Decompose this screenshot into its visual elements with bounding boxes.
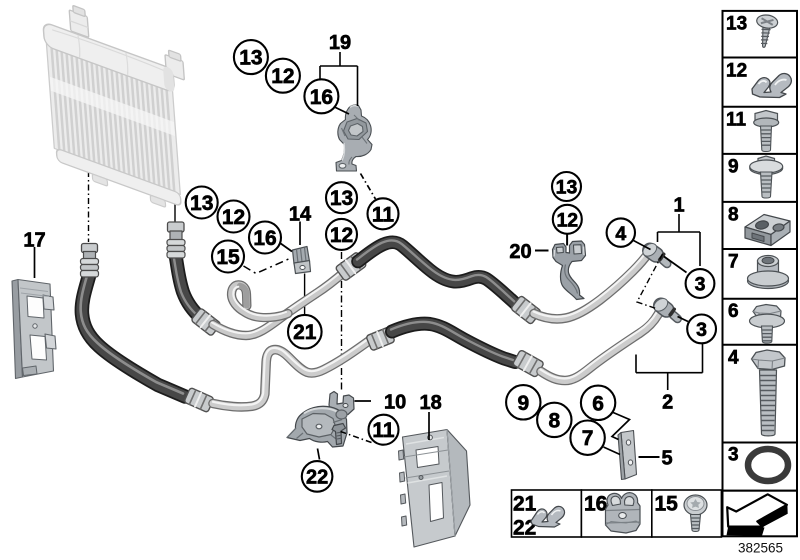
svg-text:4: 4 — [615, 223, 626, 245]
svg-text:12: 12 — [726, 61, 747, 82]
svg-text:21: 21 — [513, 493, 537, 516]
svg-text:8: 8 — [728, 205, 739, 226]
svg-text:6: 6 — [592, 392, 604, 415]
svg-text:20: 20 — [509, 241, 531, 263]
svg-text:9: 9 — [728, 157, 739, 178]
svg-text:12: 12 — [330, 224, 353, 247]
svg-text:16: 16 — [253, 227, 276, 250]
svg-text:7: 7 — [582, 427, 594, 450]
svg-text:16: 16 — [310, 86, 333, 109]
svg-text:2: 2 — [662, 392, 673, 414]
svg-text:12: 12 — [556, 209, 578, 231]
svg-text:8: 8 — [548, 409, 560, 432]
svg-text:14: 14 — [289, 204, 312, 226]
svg-text:3: 3 — [728, 445, 739, 466]
svg-text:16: 16 — [584, 493, 607, 516]
svg-text:11: 11 — [372, 203, 395, 226]
svg-text:18: 18 — [419, 392, 441, 414]
svg-text:10: 10 — [384, 392, 406, 414]
svg-text:13: 13 — [190, 192, 213, 215]
svg-text:4: 4 — [728, 348, 739, 369]
svg-text:13: 13 — [330, 187, 353, 210]
svg-text:13: 13 — [556, 177, 578, 199]
svg-text:13: 13 — [726, 14, 747, 35]
svg-text:5: 5 — [661, 448, 672, 470]
svg-text:1: 1 — [673, 195, 684, 217]
svg-text:11: 11 — [726, 110, 747, 131]
svg-text:11: 11 — [372, 419, 395, 442]
svg-text:17: 17 — [23, 230, 45, 252]
svg-text:9: 9 — [517, 392, 529, 415]
svg-text:22: 22 — [306, 467, 328, 489]
svg-text:12: 12 — [222, 206, 245, 229]
svg-text:13: 13 — [239, 47, 262, 70]
svg-text:3: 3 — [695, 274, 706, 296]
svg-text:12: 12 — [271, 65, 294, 88]
svg-text:19: 19 — [329, 32, 351, 54]
svg-text:15: 15 — [655, 493, 679, 516]
svg-text:7: 7 — [728, 252, 739, 273]
svg-text:3: 3 — [696, 319, 707, 341]
svg-text:382565: 382565 — [738, 541, 783, 556]
svg-text:21: 21 — [293, 321, 317, 344]
svg-text:6: 6 — [728, 301, 739, 322]
svg-text:15: 15 — [216, 246, 240, 269]
